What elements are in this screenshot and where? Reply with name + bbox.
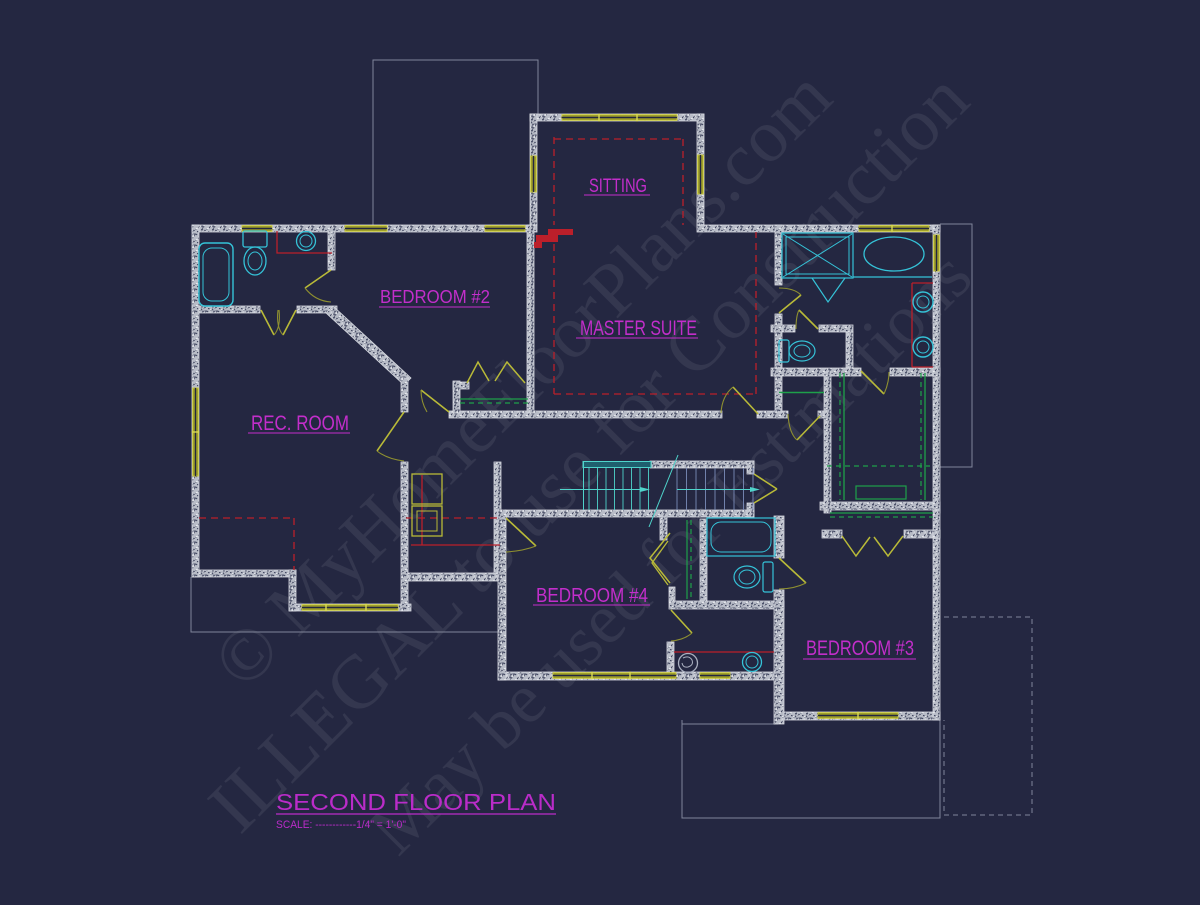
svg-text:SECOND FLOOR PLAN: SECOND FLOOR PLAN	[276, 789, 556, 815]
svg-text:MASTER SUITE: MASTER SUITE	[580, 317, 697, 340]
svg-text:BEDROOM #2: BEDROOM #2	[380, 287, 490, 307]
svg-text:BEDROOM #4: BEDROOM #4	[536, 585, 648, 607]
svg-text:SITTING: SITTING	[589, 176, 647, 197]
svg-text:BEDROOM #3: BEDROOM #3	[806, 637, 914, 660]
svg-text:REC. ROOM: REC. ROOM	[251, 412, 349, 435]
svg-text:SCALE: ------------1/4" = 1'-0: SCALE: ------------1/4" = 1'-0"	[276, 819, 406, 831]
